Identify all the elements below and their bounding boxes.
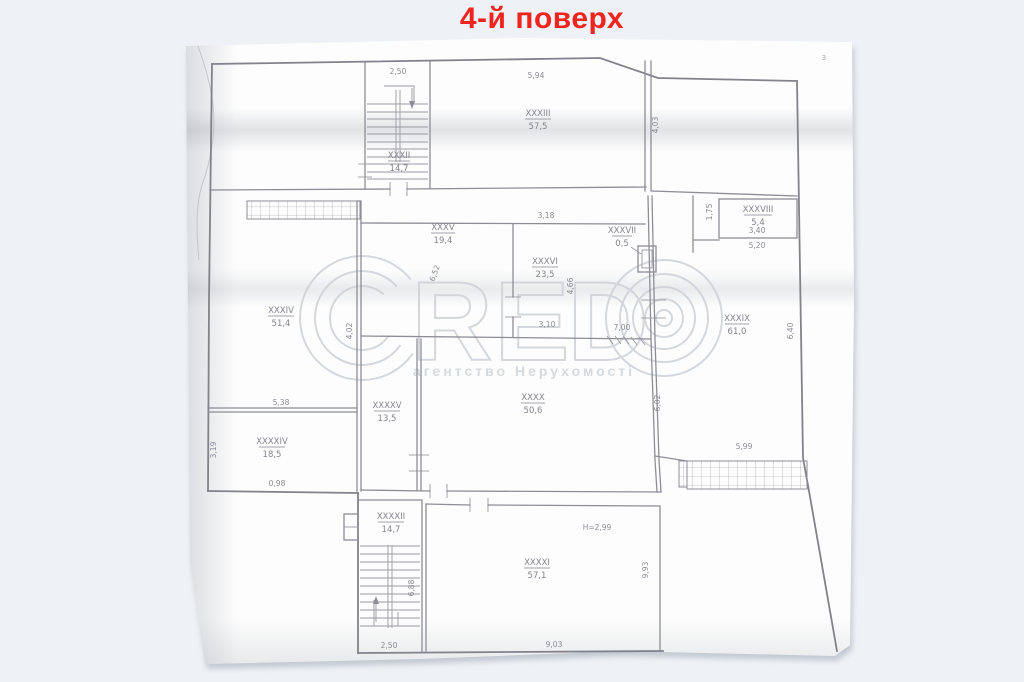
dimension-label: 9,93 — [641, 561, 650, 578]
ceiling-height-label: Н=2,99 — [583, 523, 612, 532]
dimension-label: 5,94 — [528, 71, 545, 80]
dimension-label: 6,02 — [653, 394, 662, 411]
room-area: 57,1 — [528, 571, 547, 581]
room-area: 23,5 — [536, 270, 555, 280]
room-area: 19,4 — [434, 236, 453, 246]
room-number: XXXXIV — [256, 437, 288, 447]
dimension-label: 3,10 — [539, 320, 556, 329]
room-number: XXXX — [521, 393, 544, 403]
dimension-label: 2,50 — [390, 67, 407, 76]
room-number: XXXII — [388, 151, 410, 161]
dimension-label: 5,38 — [273, 398, 290, 407]
room-area: 50,6 — [524, 406, 543, 416]
dimension-label: 4,66 — [566, 277, 575, 294]
room-number: XXXVIII — [743, 205, 774, 215]
balcony-hatch-right — [687, 461, 807, 489]
floor-plan-scan: R E D агентство Нерухомості — [0, 0, 1024, 682]
dimension-label: 1,75 — [705, 203, 714, 220]
room-area: 18,5 — [263, 450, 282, 460]
dimension-label: 9,03 — [546, 640, 563, 649]
room-area: 0,5 — [615, 239, 629, 249]
watermark-subtitle: агентство Нерухомості — [413, 363, 635, 379]
dimension-label: 6,88 — [407, 579, 416, 596]
room-number: XXXIX — [724, 314, 750, 324]
room-number: XXXIII — [526, 109, 551, 119]
page-corner-mark: 3 — [822, 54, 826, 62]
balcony-hatch-right-end — [679, 461, 687, 487]
room-number: XXXXII — [377, 512, 405, 522]
dimension-label: 3,40 — [749, 226, 766, 235]
room-number: XXXXV — [372, 401, 401, 411]
room-number: XXXXI — [524, 558, 550, 568]
dimension-label: 3,18 — [538, 211, 555, 220]
dimension-label: 5,99 — [736, 442, 753, 451]
dimension-label: 7,00 — [614, 323, 631, 332]
room-area: 14,7 — [382, 525, 401, 535]
balcony-hatch-left — [247, 201, 360, 219]
room-number: XXXVII — [608, 226, 636, 236]
room-number: XXXVI — [532, 257, 558, 267]
room-area: 51,4 — [272, 319, 291, 329]
room-area: 57,5 — [529, 122, 548, 132]
room-area: 13,5 — [378, 414, 397, 424]
dimension-label: 2,50 — [381, 641, 398, 650]
room-area: 14,7 — [390, 164, 409, 174]
dimension-label: 5,20 — [749, 241, 766, 250]
dimension-label: 6,40 — [786, 322, 795, 339]
screenshot-root: 4-й поверх — [0, 0, 1024, 682]
dimension-label: 4,02 — [345, 322, 354, 339]
room-area: 61,0 — [728, 327, 747, 337]
dimension-label: 0,98 — [269, 479, 286, 488]
dimension-label: 3,19 — [209, 441, 218, 458]
dimension-label: 4,03 — [651, 116, 660, 133]
room-number: XXXV — [431, 223, 454, 233]
room-number: XXXIV — [268, 306, 294, 316]
